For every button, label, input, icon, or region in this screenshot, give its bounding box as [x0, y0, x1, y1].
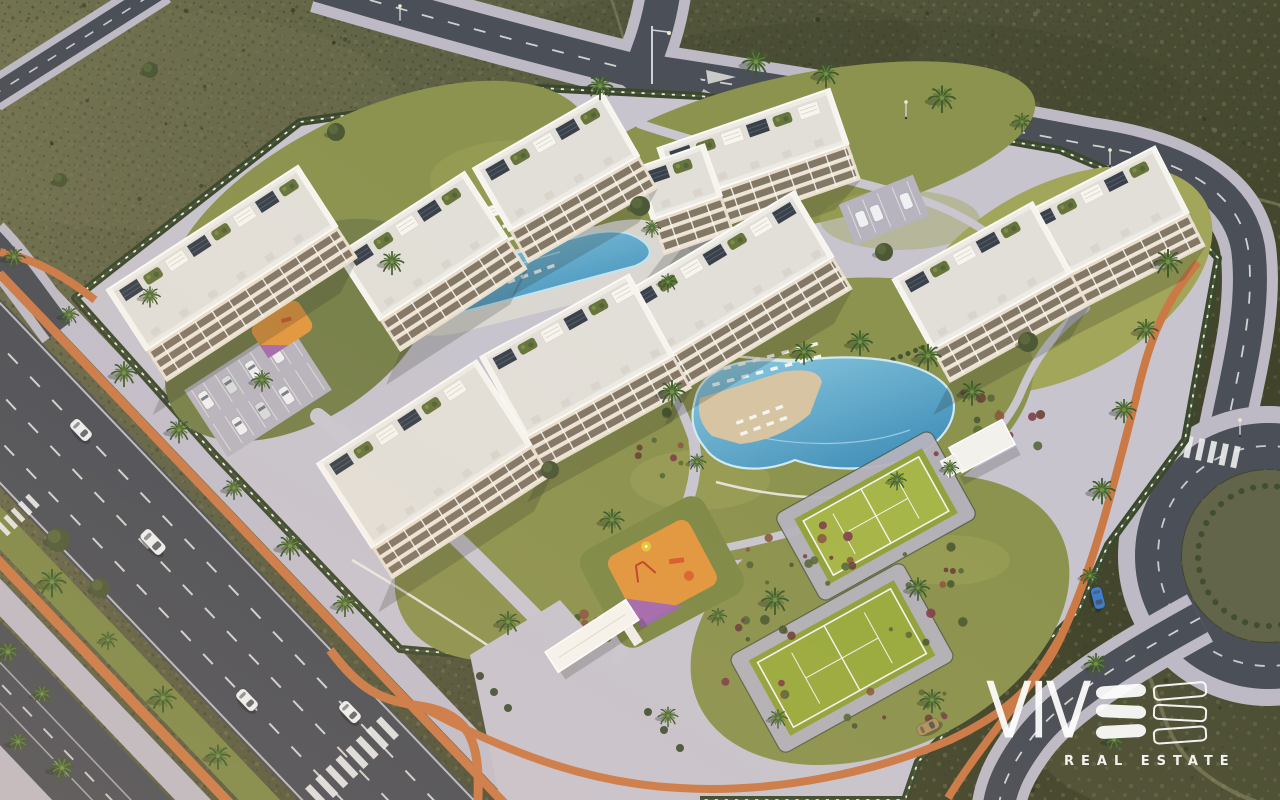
- scene-render: [0, 0, 1280, 800]
- aerial-render: VIV REAL ESTATE: [0, 0, 1280, 800]
